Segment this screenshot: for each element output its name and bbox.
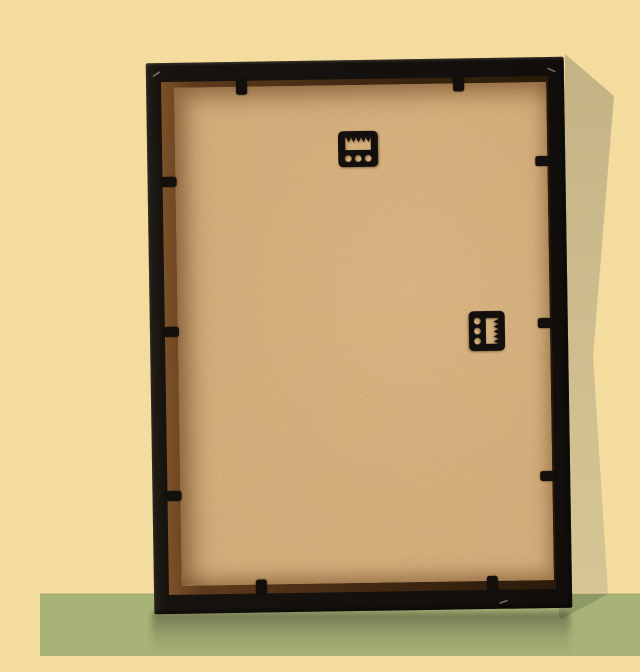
- floor-reflection: [152, 612, 570, 654]
- picture-frame-back: [146, 57, 573, 614]
- backing-clip-right-upper: [535, 156, 550, 166]
- backing-clip-left-upper: [161, 177, 176, 187]
- backing-clip-top-right: [453, 76, 464, 91]
- backing-clip-top-left: [236, 80, 247, 95]
- backing-clip-right-middle: [538, 318, 553, 328]
- backing-clip-bottom-right: [487, 576, 498, 591]
- backing-clip-bottom-left: [256, 579, 267, 594]
- sawtooth-hanger-top: [337, 130, 380, 169]
- backing-clip-left-lower: [166, 491, 181, 501]
- photo-frame-back-scene: Rear view of a black picture frame with …: [40, 16, 640, 656]
- backing-clip-right-lower: [540, 471, 555, 481]
- corner-scuff-top-left: [152, 71, 161, 78]
- backing-clip-left-middle: [164, 327, 179, 337]
- sawtooth-hanger-side: [468, 310, 507, 353]
- corner-scuff-top-right: [547, 67, 556, 73]
- corner-scuff-bottom-right: [499, 599, 508, 604]
